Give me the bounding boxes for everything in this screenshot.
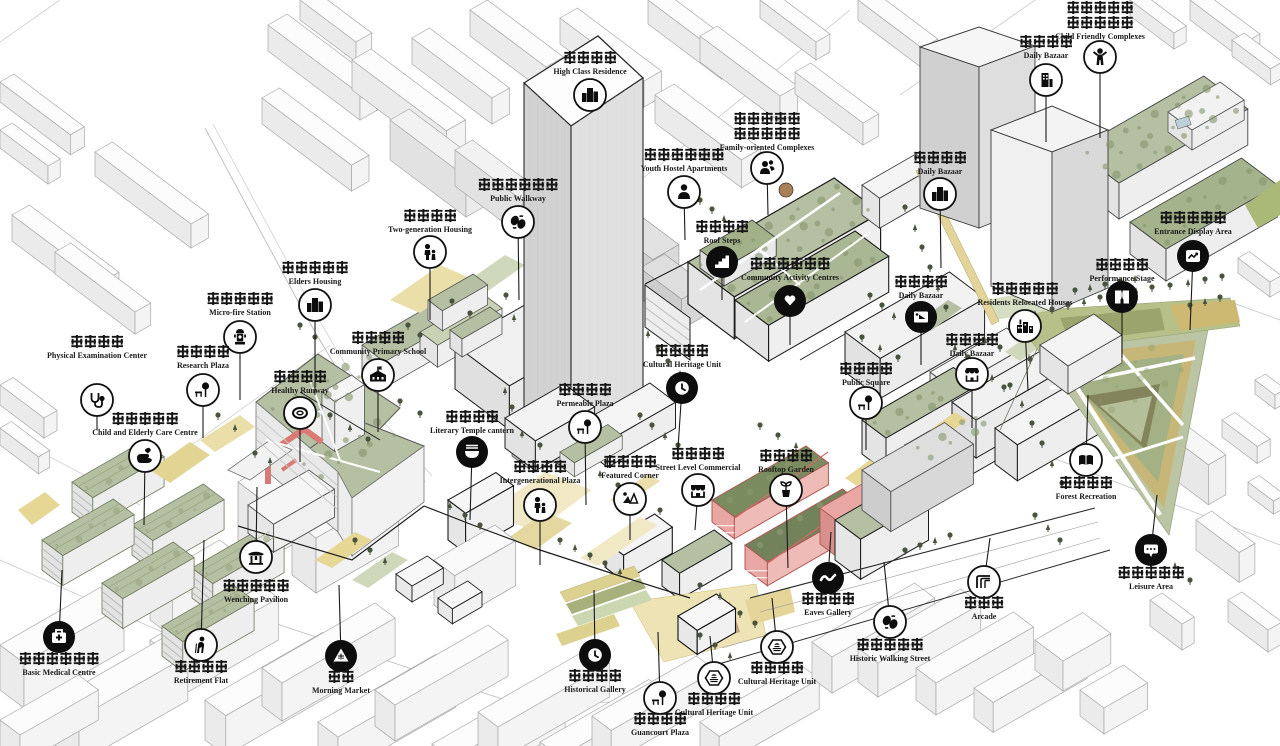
svg-text:Youth Hostel Apartments: Youth Hostel Apartments <box>641 164 728 173</box>
svg-text:Cultural Heritage Unit: Cultural Heritage Unit <box>643 360 722 369</box>
svg-text:Wenching Pavilion: Wenching Pavilion <box>224 595 289 604</box>
svg-text:Eaves Gallery: Eaves Gallery <box>804 608 852 617</box>
svg-text:Cultural Heritage Unit: Cultural Heritage Unit <box>675 708 754 717</box>
svg-text:Micro-fire Station: Micro-fire Station <box>209 308 271 317</box>
svg-text:Entrance Display Area: Entrance Display Area <box>1154 227 1232 236</box>
svg-text:Cultural Heritage Unit: Cultural Heritage Unit <box>738 677 817 686</box>
svg-text:Public Square: Public Square <box>842 378 891 387</box>
svg-text:Basic Medical Centre: Basic Medical Centre <box>22 668 96 677</box>
svg-text:Healthy Runway: Healthy Runway <box>271 386 329 395</box>
svg-text:Featured Corner: Featured Corner <box>601 471 659 480</box>
svg-text:Literary Temple cantern: Literary Temple cantern <box>430 426 515 435</box>
svg-text:Street Level Commercial: Street Level Commercial <box>655 463 741 472</box>
svg-text:Two-generation Housing: Two-generation Housing <box>388 225 472 234</box>
svg-text:Permeable Plaza: Permeable Plaza <box>556 399 613 408</box>
svg-text:Roof Steps: Roof Steps <box>704 236 741 245</box>
svg-text:Community Activity Centres: Community Activity Centres <box>741 273 839 282</box>
svg-text:Daily Bazaar: Daily Bazaar <box>918 167 963 176</box>
svg-text:Leisure Area: Leisure Area <box>1129 582 1173 591</box>
svg-text:Residents Relocated Houses: Residents Relocated Houses <box>977 298 1072 307</box>
svg-text:Community Primary School: Community Primary School <box>330 347 427 356</box>
svg-text:High Class Residence: High Class Residence <box>553 67 627 76</box>
svg-text:Research Plaza: Research Plaza <box>177 361 229 370</box>
svg-text:Public Walkway: Public Walkway <box>490 194 546 203</box>
svg-text:Retirement Flat: Retirement Flat <box>174 676 229 685</box>
svg-text:Family-oriented Complexes: Family-oriented Complexes <box>720 143 814 152</box>
svg-text:Physical Examination Center: Physical Examination Center <box>47 351 147 360</box>
svg-text:Guancourt Plaza: Guancourt Plaza <box>631 728 689 737</box>
svg-text:Daily Bazaar: Daily Bazaar <box>950 349 995 358</box>
svg-text:Child and Elderly Care Centre: Child and Elderly Care Centre <box>92 428 198 437</box>
svg-text:Performance Stage: Performance Stage <box>1089 274 1155 283</box>
svg-text:Historic Walking Street: Historic Walking Street <box>850 654 931 663</box>
svg-text:Rooftop Garden: Rooftop Garden <box>758 465 814 474</box>
svg-text:Morning Market: Morning Market <box>312 686 370 695</box>
svg-text:Forest Recreation: Forest Recreation <box>1056 492 1117 501</box>
svg-text:Elders Housing: Elders Housing <box>289 277 342 286</box>
svg-text:Arcade: Arcade <box>972 612 997 621</box>
svg-text:Historical Gallery: Historical Gallery <box>564 685 626 694</box>
svg-text:Intergenerational Plaza: Intergenerational Plaza <box>500 476 581 485</box>
svg-text:Daily Bazaar: Daily Bazaar <box>1024 51 1069 60</box>
svg-text:Daily Bazaar: Daily Bazaar <box>899 291 944 300</box>
